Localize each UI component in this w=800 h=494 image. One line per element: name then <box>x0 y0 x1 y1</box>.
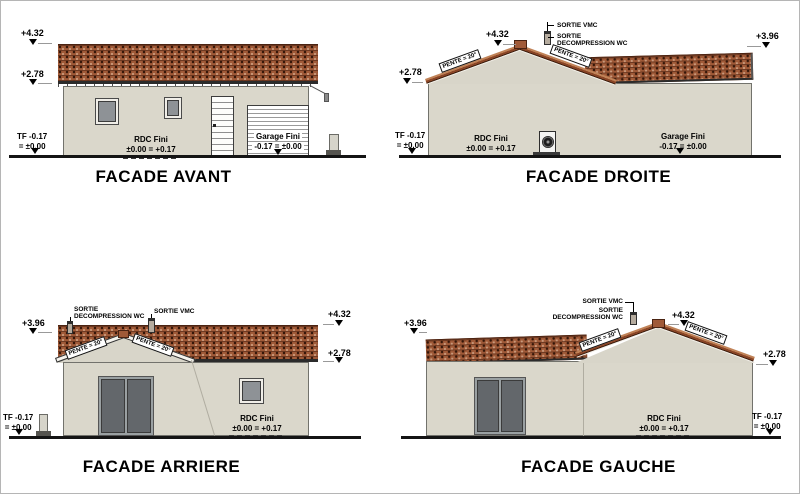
tf-line1: TF -0.17 <box>752 412 782 421</box>
rdc-fini-value: ±0.00 = +0.17 <box>639 424 688 433</box>
gauche-title: FACADE GAUCHE <box>496 457 701 477</box>
sortie-line1: SORTIE <box>599 307 623 314</box>
gauche-sortie-decomp-label: SORTIE DECOMPRESSION WC <box>538 307 623 322</box>
slider-panel <box>477 380 499 432</box>
gauche-ridge-cap <box>652 319 665 328</box>
gauche-level-278-arrow <box>769 360 777 366</box>
gauche-sortie-vmc-label: SORTIE VMC <box>553 298 623 305</box>
sortie-line2: DECOMPRESSION WC <box>553 314 623 321</box>
gauche-level-396-arrow <box>410 328 418 334</box>
gauche-corner-line <box>583 363 584 436</box>
gauche-level-396: +3.96 <box>404 318 427 328</box>
gauche-level-432: +4.32 <box>672 310 695 320</box>
gauche-ground-line <box>401 436 781 439</box>
slider-panel <box>501 380 523 432</box>
gauche-sortie-leader-v <box>633 302 634 312</box>
gauche-level-396-tick <box>419 332 427 333</box>
gauche-sliding-door <box>474 377 526 435</box>
elevation-drawing-sheet: Garage Fini -0.17 = ±0.00 +4.32 +2.78 TF… <box>0 0 800 494</box>
gauche-vmc-pipe <box>630 312 637 325</box>
gauche-level-432-tick <box>668 324 679 325</box>
gauche-rdc-label: RDC Fini ±0.00 = +0.17 <box>624 414 704 438</box>
rdc-fini-name: RDC Fini <box>647 414 681 423</box>
gauche-tf-arrow <box>766 429 774 435</box>
gauche-level-278-tick <box>756 364 768 365</box>
gauche-level-278: +2.78 <box>763 349 786 359</box>
facade-gauche: SORTIE VMC SORTIE DECOMPRESSION WC +4.32… <box>1 1 799 493</box>
